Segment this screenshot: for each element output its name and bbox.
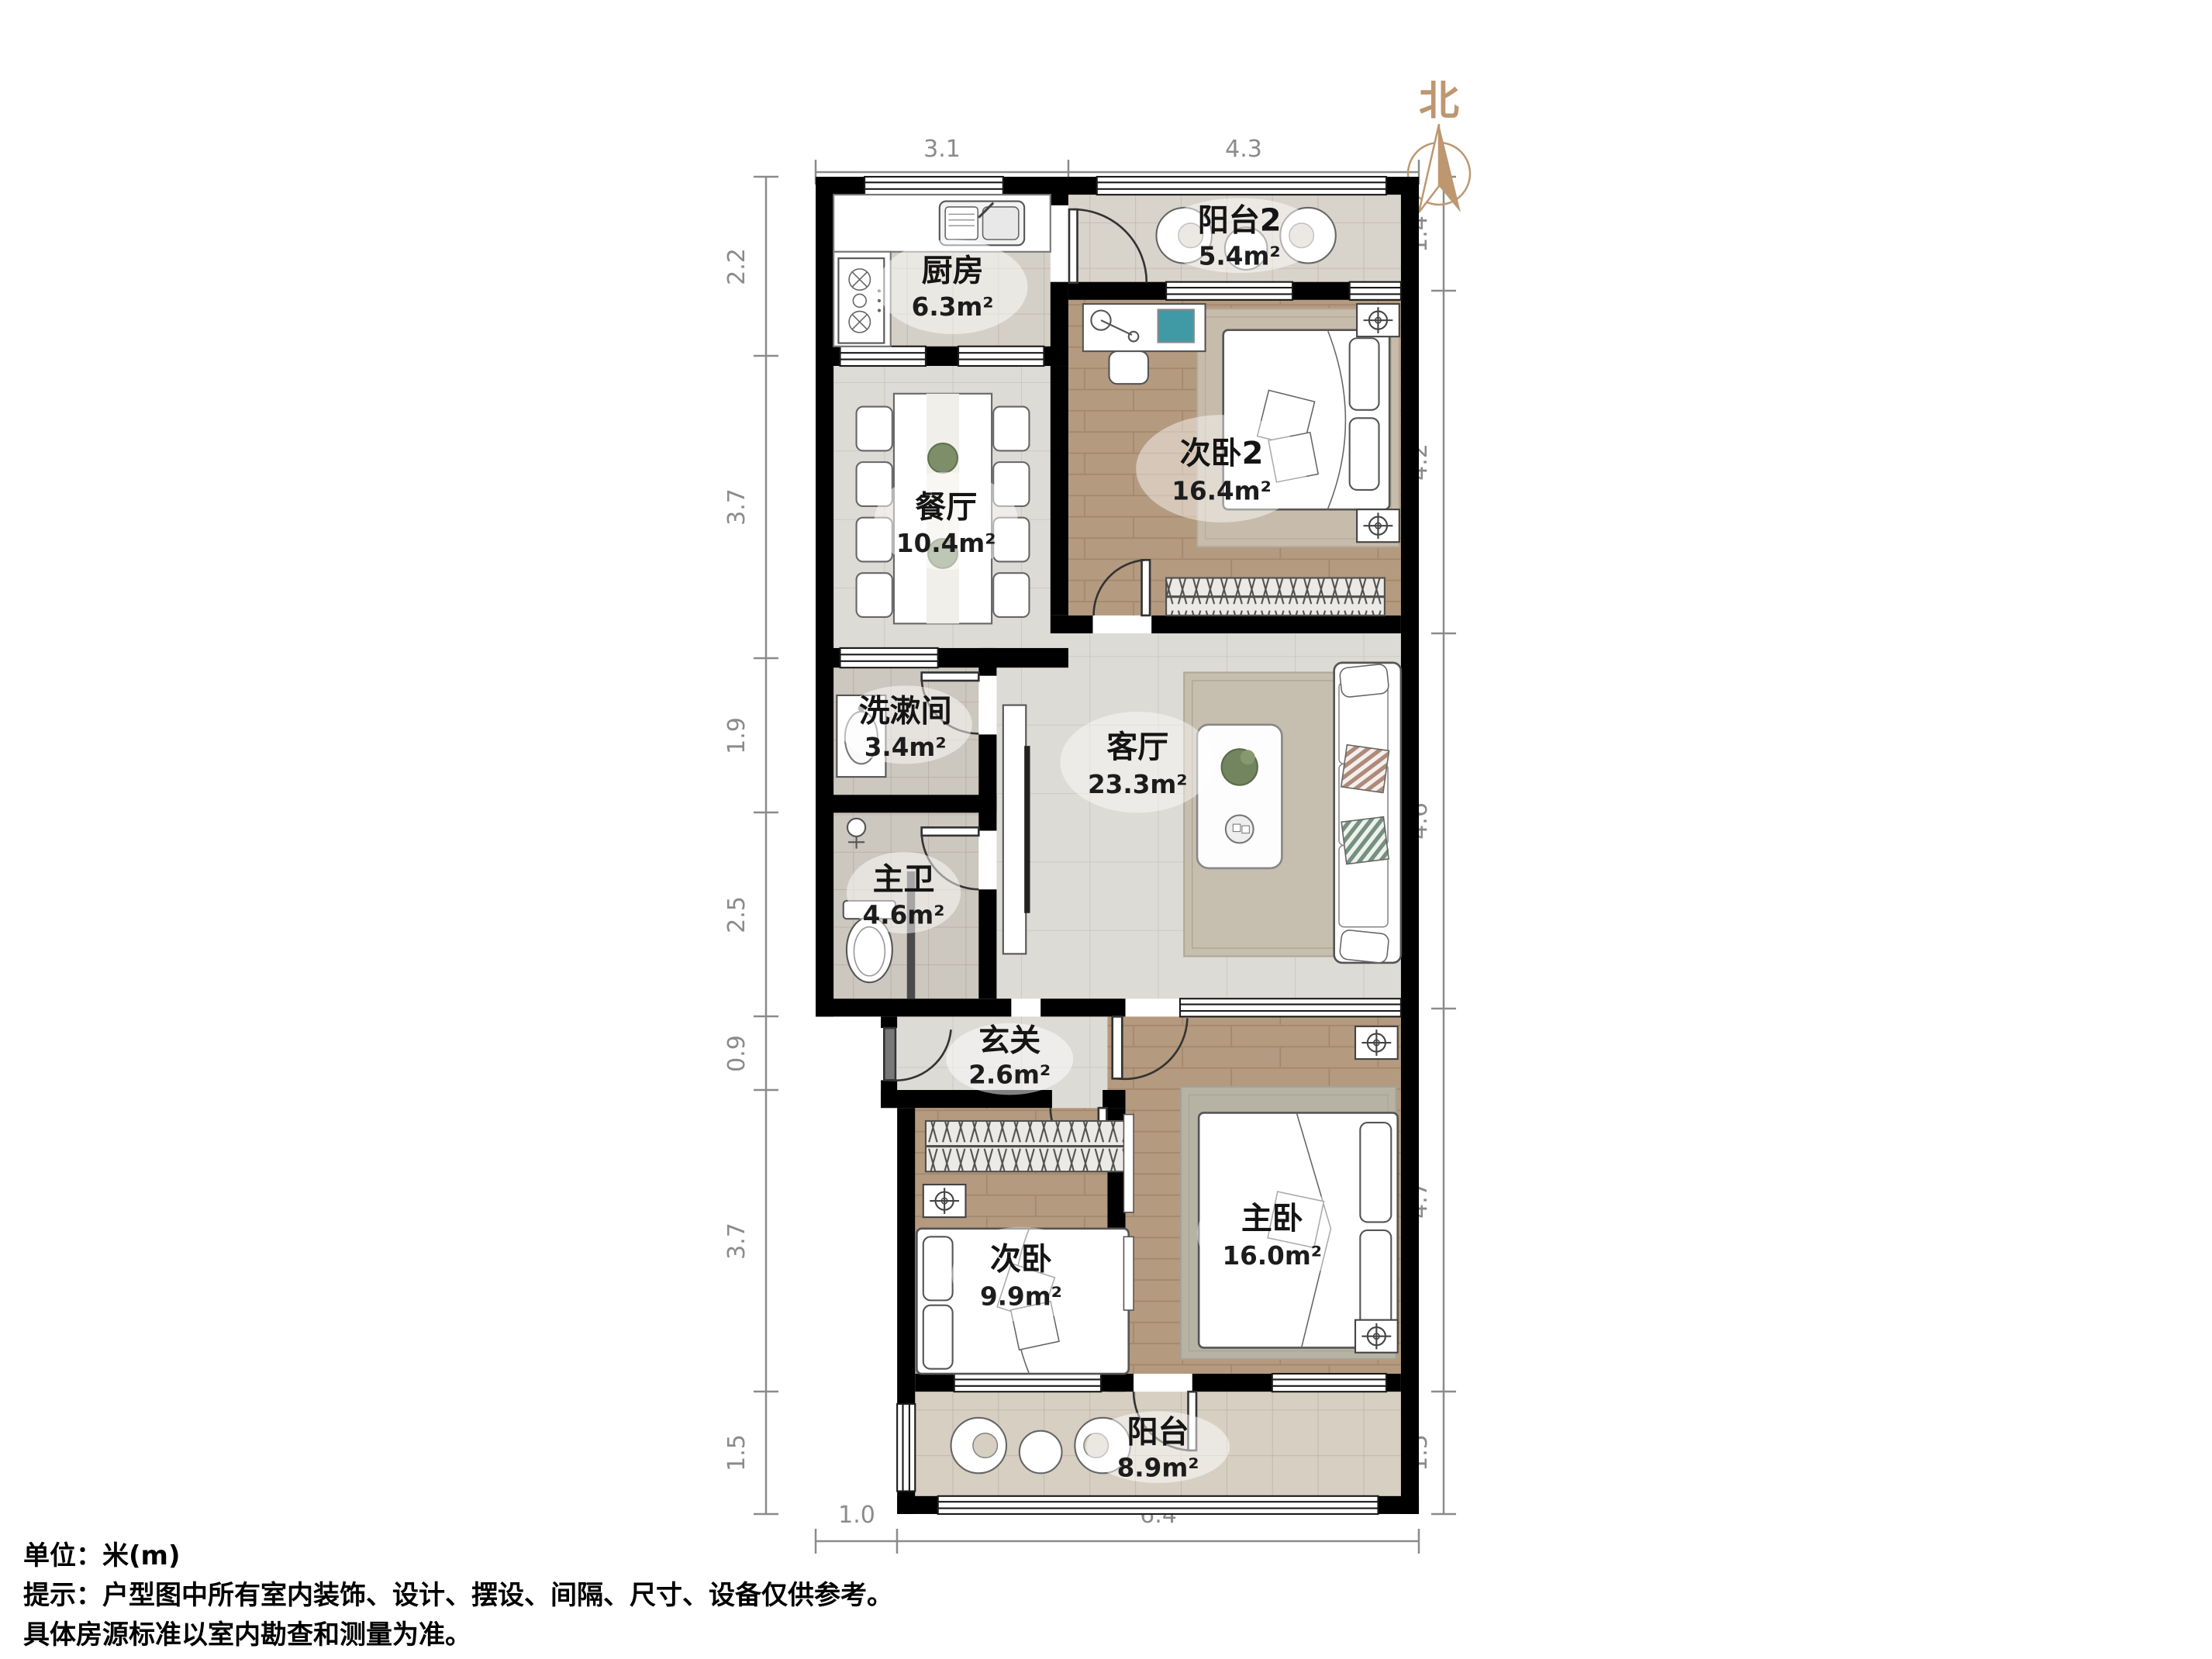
ac-unit bbox=[923, 1185, 966, 1217]
svg-text:10.4m²: 10.4m² bbox=[896, 529, 996, 558]
svg-text:次卧2: 次卧2 bbox=[1180, 436, 1264, 471]
svg-text:阳台: 阳台 bbox=[1127, 1414, 1189, 1450]
plan: 厨房 6.3m² 阳台2 5.4m² 次卧2 16.4m² 餐厅 10.4m² … bbox=[816, 177, 1419, 1514]
svg-text:客厅: 客厅 bbox=[1106, 729, 1168, 765]
svg-text:4.6m²: 4.6m² bbox=[863, 900, 945, 930]
master-sliding-panels bbox=[1123, 1115, 1134, 1310]
balcony-table bbox=[1020, 1431, 1062, 1474]
svg-text:2.6m²: 2.6m² bbox=[968, 1061, 1051, 1090]
dim-left-7: 1.5 bbox=[723, 1434, 751, 1471]
room-label-bedroom2: 次卧2 16.4m² bbox=[1136, 415, 1307, 523]
svg-text:次卧: 次卧 bbox=[990, 1241, 1052, 1277]
balcony-inner-windows bbox=[954, 1374, 1386, 1392]
floor-plan-svg: 3.1 4.3 2.2 3.7 1.9 2.5 0.9 3.7 1.5 1.4 … bbox=[0, 0, 2212, 1659]
room-label-master-bath: 主卫 4.6m² bbox=[847, 852, 961, 933]
bedroom-wardrobe bbox=[926, 1121, 1126, 1171]
room-label-living: 客厅 23.3m² bbox=[1060, 712, 1215, 812]
dim-top-2: 4.3 bbox=[1225, 136, 1262, 163]
tv-console bbox=[1003, 705, 1030, 954]
floor-plan-page: 3.1 4.3 2.2 3.7 1.9 2.5 0.9 3.7 1.5 1.4 … bbox=[0, 0, 2212, 1659]
room-label-washroom: 洗漱间 3.4m² bbox=[838, 685, 971, 764]
compass-north-label: 北 bbox=[1419, 78, 1459, 125]
bedroom2-wardrobe bbox=[1166, 578, 1385, 615]
svg-text:玄关: 玄关 bbox=[978, 1023, 1040, 1059]
room-label-master-bedroom: 主卧 16.0m² bbox=[1197, 1185, 1347, 1282]
disclaimer-line1: 提示：户型图中所有室内装饰、设计、摆设、间隔、尺寸、设备仅供参考。 bbox=[23, 1576, 893, 1616]
balcony-front-window bbox=[938, 1496, 1379, 1514]
svg-text:餐厅: 餐厅 bbox=[915, 490, 977, 526]
balcony2-window bbox=[1097, 177, 1386, 195]
dim-left-1: 2.2 bbox=[723, 248, 751, 285]
ac-unit bbox=[1355, 1026, 1398, 1059]
svg-text:主卧: 主卧 bbox=[1241, 1201, 1303, 1236]
bedroom2-chair bbox=[1109, 351, 1148, 384]
room-label-balcony: 阳台 8.9m² bbox=[1086, 1411, 1230, 1483]
svg-text:23.3m²: 23.3m² bbox=[1088, 770, 1188, 799]
dim-bottom-1: 1.0 bbox=[838, 1502, 875, 1529]
svg-text:16.0m²: 16.0m² bbox=[1222, 1241, 1322, 1271]
washroom-glazing bbox=[840, 648, 938, 667]
living-master-glazing bbox=[1180, 999, 1401, 1016]
ac-unit bbox=[1357, 509, 1399, 542]
kitchen-sink bbox=[940, 202, 1024, 246]
room-label-bedroom: 次卧 9.9m² bbox=[952, 1227, 1091, 1322]
plant bbox=[928, 443, 958, 473]
balcony-side-window bbox=[897, 1404, 915, 1492]
kitchen-window bbox=[864, 177, 1003, 195]
room-label-balcony2: 阳台2 5.4m² bbox=[1158, 198, 1321, 273]
svg-text:9.9m²: 9.9m² bbox=[980, 1282, 1062, 1312]
svg-text:8.9m²: 8.9m² bbox=[1117, 1454, 1199, 1483]
room-label-entry: 玄关 2.6m² bbox=[946, 1023, 1073, 1095]
dim-left-6: 3.7 bbox=[723, 1223, 751, 1260]
svg-text:洗漱间: 洗漱间 bbox=[859, 694, 952, 729]
room-label-kitchen: 厨房 6.3m² bbox=[878, 240, 1027, 334]
svg-text:主卫: 主卫 bbox=[873, 861, 935, 897]
ac-unit bbox=[1357, 304, 1399, 336]
room-label-dining: 餐厅 10.4m² bbox=[875, 472, 1018, 570]
ac-unit bbox=[1355, 1320, 1398, 1353]
kitchen-stove bbox=[838, 258, 884, 343]
unit-note: 单位：米(m) bbox=[23, 1537, 893, 1576]
svg-text:厨房: 厨房 bbox=[922, 254, 984, 289]
dim-left-5: 0.9 bbox=[723, 1035, 751, 1072]
dim-left-2: 3.7 bbox=[723, 488, 751, 526]
svg-text:6.3m²: 6.3m² bbox=[912, 292, 994, 322]
dim-top-1: 3.1 bbox=[923, 136, 961, 163]
svg-text:3.4m²: 3.4m² bbox=[864, 733, 947, 762]
sofa bbox=[1334, 663, 1401, 964]
bedroom2-balcony-window bbox=[1166, 282, 1401, 300]
svg-text:16.4m²: 16.4m² bbox=[1172, 477, 1272, 506]
disclaimer-line2: 具体房源标准以室内勘查和测量为准。 bbox=[23, 1616, 893, 1655]
dim-left-4: 2.5 bbox=[723, 896, 751, 933]
footer-notes: 单位：米(m) 提示：户型图中所有室内装饰、设计、摆设、间隔、尺寸、设备仅供参考… bbox=[23, 1537, 893, 1655]
svg-text:5.4m²: 5.4m² bbox=[1199, 242, 1281, 271]
svg-text:阳台2: 阳台2 bbox=[1198, 202, 1282, 238]
dim-left-3: 1.9 bbox=[723, 717, 751, 754]
